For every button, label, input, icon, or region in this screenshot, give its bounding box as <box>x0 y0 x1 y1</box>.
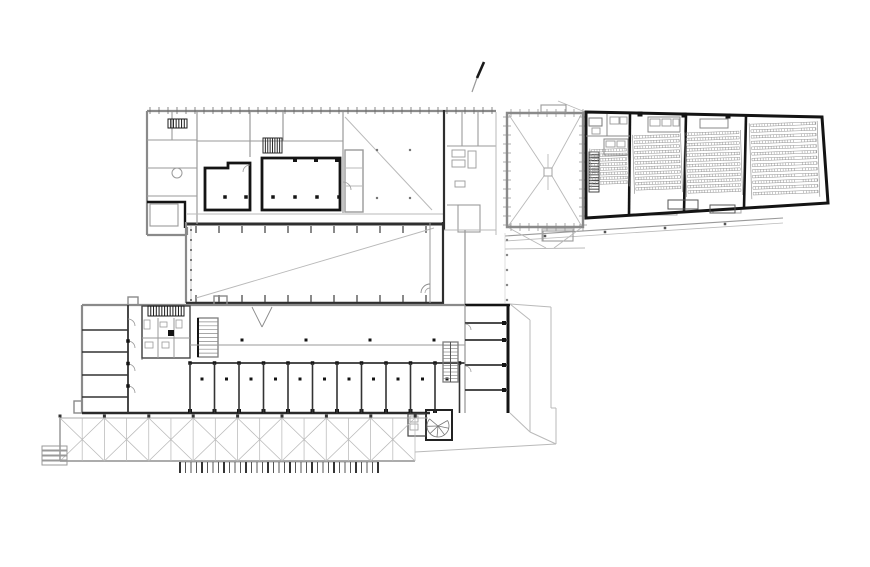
lower-roof-outline <box>415 304 556 452</box>
central-hall <box>186 222 508 304</box>
lecture-hall-building <box>586 112 828 219</box>
square-hall <box>503 105 587 249</box>
north-mark <box>472 62 484 92</box>
floor-plan-canvas <box>0 0 870 567</box>
bike-racks <box>180 462 378 473</box>
floor-plan-page <box>0 0 870 567</box>
canopy <box>42 415 428 466</box>
upper-left-building <box>147 107 496 235</box>
upper-mid-section <box>443 112 496 235</box>
